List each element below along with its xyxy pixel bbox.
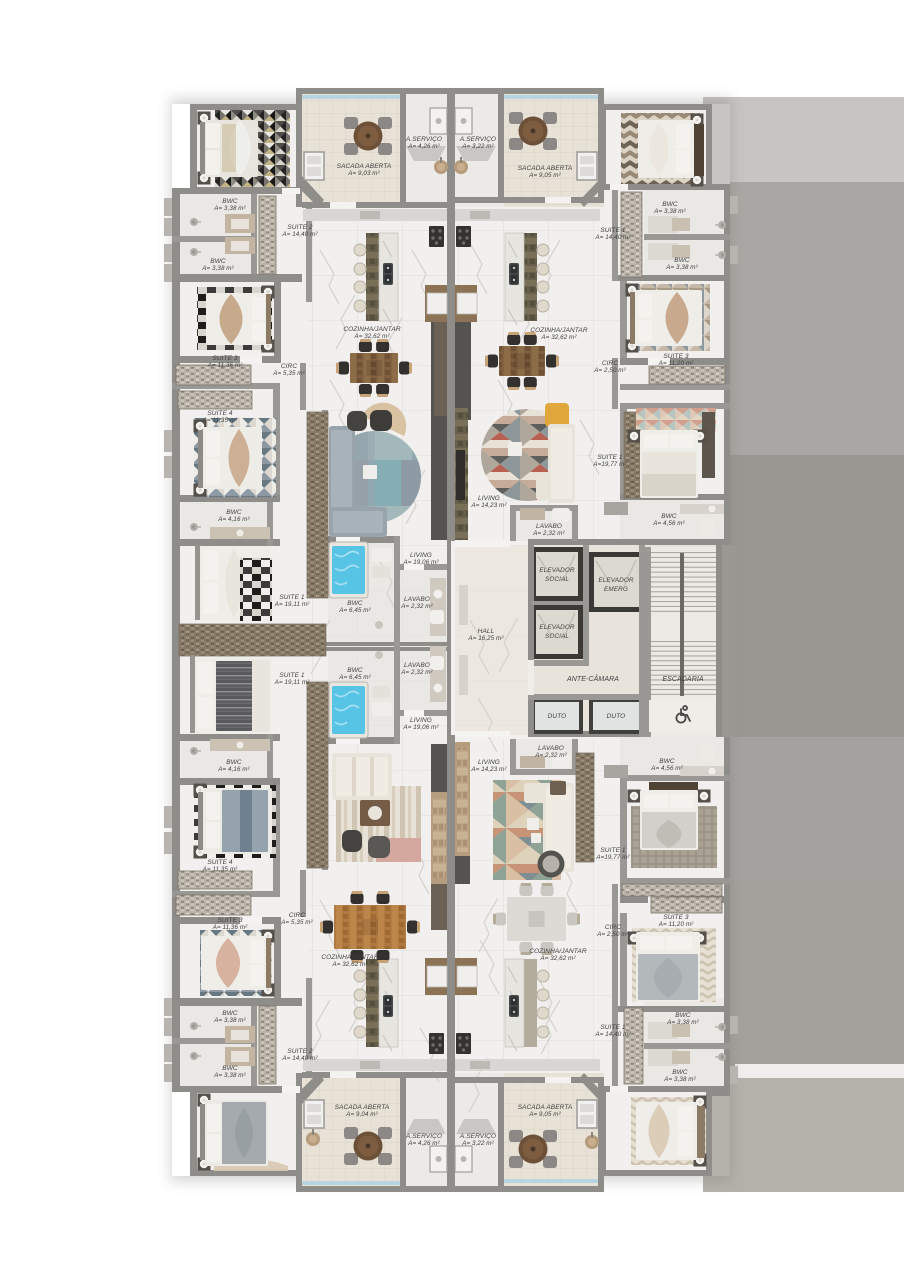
svg-text:SUITE 4: SUITE 4 — [207, 410, 233, 417]
svg-text:A= 32,62 m²: A= 32,62 m² — [332, 961, 369, 968]
svg-text:LIVING: LIVING — [478, 759, 500, 766]
svg-text:COZINHA/JANTAR: COZINHA/JANTAR — [530, 327, 587, 334]
svg-text:A= 16,25 m²: A= 16,25 m² — [468, 635, 505, 642]
svg-text:A= 19,06 m²: A= 19,06 m² — [403, 724, 440, 731]
svg-text:BWC: BWC — [662, 201, 678, 208]
svg-text:SACADA ABERTA: SACADA ABERTA — [335, 1104, 390, 1111]
svg-text:SUITE 3: SUITE 3 — [663, 353, 689, 360]
svg-text:BWC: BWC — [347, 667, 363, 674]
svg-text:BWC: BWC — [226, 759, 242, 766]
svg-text:ELEVADOR: ELEVADOR — [539, 567, 575, 574]
svg-text:BWC: BWC — [672, 1069, 688, 1076]
svg-text:CIRC: CIRC — [602, 360, 618, 367]
svg-text:BWC: BWC — [661, 513, 677, 520]
svg-text:A= 32,62 m²: A= 32,62 m² — [354, 333, 391, 340]
svg-text:SUITE 1: SUITE 1 — [597, 454, 623, 461]
svg-text:A= 5,35 m²: A= 5,35 m² — [272, 370, 305, 377]
svg-text:LAVABO: LAVABO — [536, 523, 562, 530]
svg-text:A= 19,11 m²: A= 19,11 m² — [274, 601, 310, 608]
svg-text:COZINHA/JANTAR: COZINHA/JANTAR — [321, 954, 378, 961]
svg-text:A= 4,16 m²: A= 4,16 m² — [217, 766, 250, 773]
svg-text:SUITE 1: SUITE 1 — [600, 847, 626, 854]
svg-text:A= 14,23 m²: A= 14,23 m² — [471, 502, 508, 509]
svg-text:SUITE 2: SUITE 2 — [287, 224, 313, 231]
svg-text:BWC: BWC — [347, 600, 363, 607]
svg-text:BWC: BWC — [674, 257, 690, 264]
svg-text:CIRC: CIRC — [289, 912, 305, 919]
svg-text:HALL: HALL — [478, 628, 495, 635]
svg-text:A= 3,22 m²: A= 3,22 m² — [461, 143, 494, 150]
svg-text:ANTE-CÂMARA: ANTE-CÂMARA — [566, 674, 619, 683]
svg-text:A=19,77 m²: A=19,77 m² — [595, 854, 630, 861]
svg-text:A= 4,56 m²: A= 4,56 m² — [650, 765, 683, 772]
svg-text:COZINHA/JANTAR: COZINHA/JANTAR — [529, 948, 586, 955]
svg-text:A= 3,38 m²: A= 3,38 m² — [663, 1076, 696, 1083]
svg-text:SUITE 3: SUITE 3 — [663, 914, 689, 921]
svg-text:LIVING: LIVING — [410, 717, 432, 724]
svg-text:SACADA ABERTA: SACADA ABERTA — [337, 163, 392, 170]
svg-text:CIRC: CIRC — [281, 363, 297, 370]
svg-text:SUITE 2: SUITE 2 — [287, 1048, 313, 1055]
svg-text:A= 4,56 m²: A= 4,56 m² — [652, 520, 685, 527]
svg-text:A= 11,20 m²: A= 11,20 m² — [658, 921, 694, 928]
svg-text:DUTO: DUTO — [607, 713, 626, 720]
svg-text:A= 14,40 m²: A= 14,40 m² — [595, 234, 632, 241]
svg-text:BWC: BWC — [222, 1065, 238, 1072]
svg-text:BWC: BWC — [675, 1012, 691, 1019]
svg-text:A.SERVIÇO: A.SERVIÇO — [405, 1133, 442, 1140]
svg-text:LIVING: LIVING — [478, 495, 500, 502]
svg-text:A= 14,40 m²: A= 14,40 m² — [282, 231, 319, 238]
svg-text:A= 32,62 m²: A= 32,62 m² — [540, 955, 577, 962]
svg-text:A= 2,32 m²: A= 2,32 m² — [532, 530, 565, 537]
svg-text:A= 32,62 m²: A= 32,62 m² — [541, 334, 578, 341]
svg-text:A= 4,26 m²: A= 4,26 m² — [407, 143, 440, 150]
svg-text:A= 11,35 m²: A= 11,35 m² — [202, 417, 238, 424]
svg-text:SUITE 1: SUITE 1 — [600, 227, 626, 234]
svg-text:A.SERVIÇO: A.SERVIÇO — [459, 1133, 496, 1140]
svg-text:SACADA ABERTA: SACADA ABERTA — [518, 1104, 573, 1111]
svg-text:A= 3,38 m²: A= 3,38 m² — [201, 265, 234, 272]
svg-text:SOCIAL: SOCIAL — [545, 633, 569, 640]
svg-text:A= 2,50 m²: A= 2,50 m² — [596, 931, 629, 938]
svg-text:EMERG: EMERG — [604, 586, 628, 593]
svg-text:SACADA ABERTA: SACADA ABERTA — [518, 165, 573, 172]
svg-text:A= 14,40 m²: A= 14,40 m² — [282, 1055, 319, 1062]
svg-text:SUITE 3: SUITE 3 — [212, 355, 238, 362]
svg-text:A= 9,03 m²: A= 9,03 m² — [347, 170, 380, 177]
svg-text:A= 2,32 m²: A= 2,32 m² — [400, 669, 433, 676]
svg-text:SUITE 1: SUITE 1 — [279, 594, 305, 601]
svg-text:A= 9,04 m²: A= 9,04 m² — [345, 1111, 378, 1118]
svg-text:A= 3,38 m²: A= 3,38 m² — [213, 1017, 246, 1024]
svg-text:A.SERVIÇO: A.SERVIÇO — [405, 136, 442, 143]
svg-text:LAVABO: LAVABO — [538, 745, 564, 752]
svg-text:A= 4,16 m²: A= 4,16 m² — [217, 516, 250, 523]
svg-text:A= 19,11 m²: A= 19,11 m² — [274, 679, 310, 686]
svg-text:ESCADARIA: ESCADARIA — [662, 676, 704, 683]
svg-text:BWC: BWC — [210, 258, 226, 265]
svg-text:A= 9,05 m²: A= 9,05 m² — [528, 1111, 561, 1118]
svg-text:SUITE 1: SUITE 1 — [600, 1024, 626, 1031]
svg-text:DUTO: DUTO — [548, 713, 567, 720]
svg-text:SUITE 4: SUITE 4 — [207, 859, 233, 866]
svg-text:A= 19,06 m²: A= 19,06 m² — [403, 559, 440, 566]
svg-text:A= 4,26 m²: A= 4,26 m² — [407, 1140, 440, 1147]
svg-text:A= 2,32 m²: A= 2,32 m² — [534, 752, 567, 759]
svg-text:CIRC: CIRC — [605, 924, 621, 931]
svg-text:A= 11,20 m²: A= 11,20 m² — [658, 360, 694, 367]
svg-text:BWC: BWC — [226, 509, 242, 516]
svg-text:BWC: BWC — [222, 198, 238, 205]
svg-text:COZINHA/JANTAR: COZINHA/JANTAR — [343, 326, 400, 333]
svg-text:SUITE 1: SUITE 1 — [279, 672, 305, 679]
svg-text:A= 3,38 m²: A= 3,38 m² — [665, 264, 698, 271]
svg-text:A= 6,45 m²: A= 6,45 m² — [338, 674, 371, 681]
svg-text:LAVABO: LAVABO — [404, 596, 430, 603]
svg-text:A= 11,36 m²: A= 11,36 m² — [207, 362, 243, 369]
svg-text:A= 14,23 m²: A= 14,23 m² — [471, 766, 508, 773]
svg-text:A=19,77 m²: A=19,77 m² — [592, 461, 627, 468]
svg-text:A= 2,32 m²: A= 2,32 m² — [400, 603, 433, 610]
svg-text:BWC: BWC — [659, 758, 675, 765]
svg-text:A= 3,38 m²: A= 3,38 m² — [653, 208, 686, 215]
svg-text:LIVING: LIVING — [410, 552, 432, 559]
svg-text:A= 3,38 m²: A= 3,38 m² — [213, 1072, 246, 1079]
svg-text:A.SERVIÇO: A.SERVIÇO — [459, 136, 496, 143]
svg-text:SUITE 3: SUITE 3 — [217, 917, 243, 924]
svg-text:A= 9,05 m²: A= 9,05 m² — [528, 172, 561, 179]
svg-text:A= 2,50 m²: A= 2,50 m² — [593, 367, 626, 374]
svg-text:A= 5,35 m²: A= 5,35 m² — [280, 919, 313, 926]
svg-text:A= 3,38 m²: A= 3,38 m² — [213, 205, 246, 212]
svg-text:ELEVADOR: ELEVADOR — [598, 577, 634, 584]
svg-text:ELEVADOR: ELEVADOR — [539, 624, 575, 631]
svg-text:BWC: BWC — [222, 1010, 238, 1017]
svg-text:SOCIAL: SOCIAL — [545, 576, 569, 583]
svg-text:A= 3,38 m²: A= 3,38 m² — [666, 1019, 699, 1026]
svg-text:A= 6,45 m²: A= 6,45 m² — [338, 607, 371, 614]
svg-text:A= 11,36 m²: A= 11,36 m² — [212, 924, 248, 931]
svg-text:A= 3,22 m²: A= 3,22 m² — [461, 1140, 494, 1147]
svg-text:A= 11,35 m²: A= 11,35 m² — [202, 866, 238, 873]
svg-text:LAVABO: LAVABO — [404, 662, 430, 669]
svg-text:A= 14,40 m²: A= 14,40 m² — [595, 1031, 632, 1038]
